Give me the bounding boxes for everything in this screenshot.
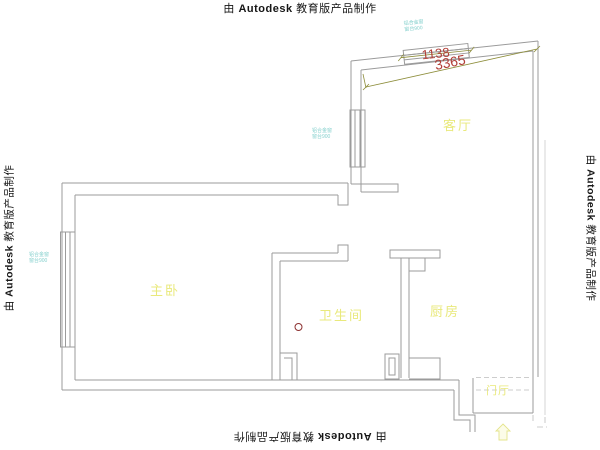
- room-label-entry-hall: 门厅: [486, 383, 510, 397]
- watermark-prefix: 由: [223, 3, 235, 15]
- watermark-prefix: 由: [375, 430, 387, 442]
- corner-dashdot-marks: [533, 415, 547, 427]
- floorplan-drawing: 1138 3365 客厅 主卧 卫生间 厨房 门厅: [0, 0, 600, 450]
- room-label-bathroom: 卫生间: [319, 308, 364, 323]
- window-annotation-line2: 窗台900: [29, 258, 47, 264]
- watermark-brand: Autodesk: [4, 245, 16, 297]
- watermark-left: 由 Autodesk 教育版产品制作: [2, 165, 17, 312]
- watermark-bottom: 由 Autodesk 教育版产品制作: [233, 429, 386, 445]
- window-annotation-top: 铝合金窗 窗台900: [403, 19, 424, 33]
- entrance-arrow-icon: [496, 424, 510, 440]
- watermark-prefix: 由: [585, 155, 597, 166]
- room-label-kitchen: 厨房: [430, 304, 460, 319]
- room-label-master-bedroom: 主卧: [150, 283, 180, 298]
- watermark-prefix: 由: [4, 300, 16, 311]
- cad-floorplan-viewport: 1138 3365 客厅 主卧 卫生间 厨房 门厅 铝合金窗 窗台900: [0, 0, 600, 450]
- watermark-suffix: 教育版产品制作: [4, 165, 16, 242]
- watermark-brand: Autodesk: [238, 3, 292, 15]
- window-left-bedroom: [61, 232, 76, 347]
- watermark-brand: Autodesk: [317, 430, 371, 442]
- window-left-living-room: [350, 110, 365, 167]
- window-annotation-bedroom: 铝合金窗 窗台900: [29, 252, 49, 264]
- window-annotation-line2: 窗台900: [312, 134, 330, 140]
- watermark-suffix: 教育版产品制作: [296, 3, 377, 15]
- floor-drain-symbol: [295, 324, 302, 331]
- watermark-suffix: 教育版产品制作: [233, 430, 314, 442]
- window-annotation-living: 铝合金窗 窗台900: [312, 128, 332, 140]
- exterior-walls: [62, 41, 538, 432]
- watermark-suffix: 教育版产品制作: [585, 224, 597, 301]
- room-label-living-room: 客厅: [443, 118, 473, 133]
- watermark-brand: Autodesk: [585, 169, 597, 221]
- watermark-top: 由 Autodesk 教育版产品制作: [223, 0, 376, 16]
- watermark-right: 由 Autodesk 教育版产品制作: [584, 155, 599, 302]
